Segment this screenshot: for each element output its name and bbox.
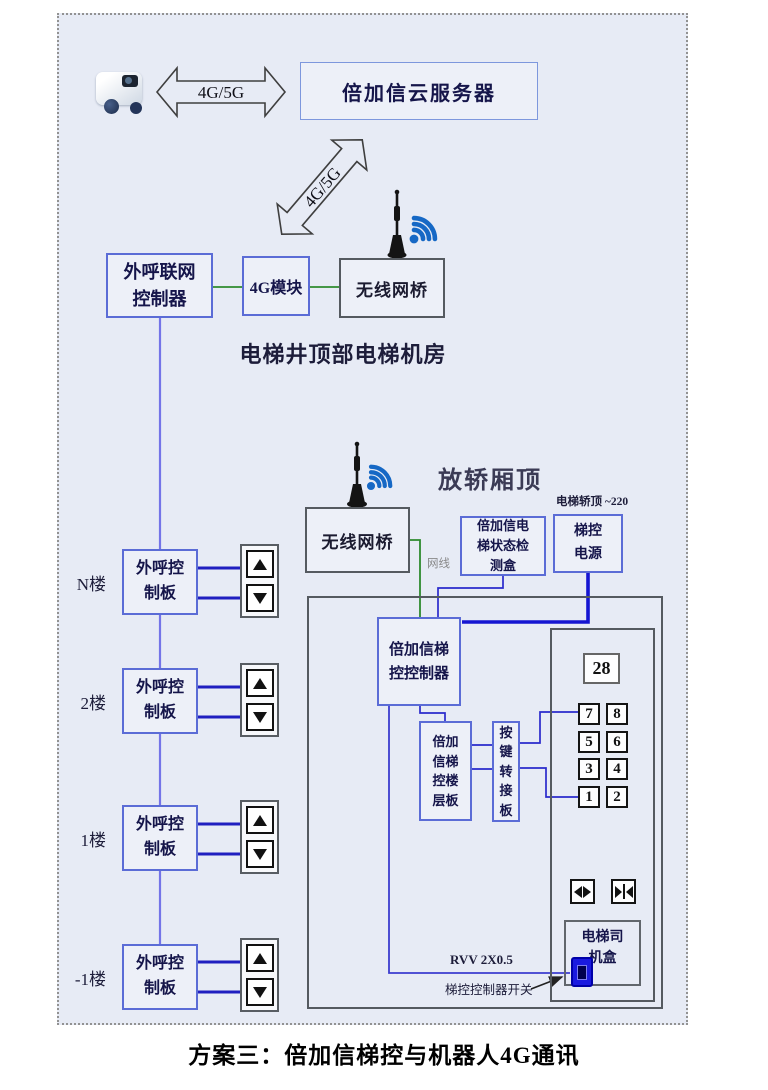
keypad-button-7: 7 xyxy=(578,703,600,725)
power-note-label: 电梯轿顶 ~220 xyxy=(556,493,646,509)
switch-slot xyxy=(577,965,587,980)
keypad-button-4: 4 xyxy=(606,758,628,780)
switch-label: 梯控控制器开关 xyxy=(445,979,545,998)
down-arrow-icon xyxy=(246,840,274,868)
robot-icon xyxy=(96,64,152,118)
keypad-button-8: 8 xyxy=(606,703,628,725)
keypad-button-5: 5 xyxy=(578,731,600,753)
down-arrow-icon xyxy=(246,703,274,731)
door-open-right-triangle xyxy=(583,886,591,898)
elevator-status-detect-box: 倍加信电 梯状态检 测盒 xyxy=(460,516,546,576)
up-arrow-icon xyxy=(246,944,274,972)
up-arrow-icon xyxy=(246,669,274,697)
car-top-caption: 放轿厢顶 xyxy=(438,460,548,495)
scheme-diagram-page: 4G/5G 4G/5G xyxy=(0,0,768,1090)
page-title: 方案三：倍加信梯控与机器人4G通讯 xyxy=(0,1036,768,1070)
door-close-icon xyxy=(611,879,636,904)
up-arrow-icon xyxy=(246,550,274,578)
machine-room-caption: 电梯井顶部电梯机房 xyxy=(237,337,449,369)
call-button-panel-2 xyxy=(240,663,279,737)
robot-camera-lens xyxy=(125,77,132,84)
door-close-bar xyxy=(623,884,625,899)
outcall-board-n: 外呼控 制板 xyxy=(122,549,198,615)
cloud-server-box: 倍加信云服务器 xyxy=(300,62,538,120)
elevator-control-controller-box: 倍加信梯 控控制器 xyxy=(377,617,461,706)
keypad-button-6: 6 xyxy=(606,731,628,753)
keypad-button-1: 1 xyxy=(578,786,600,808)
outcall-board-minus1: 外呼控 制板 xyxy=(122,944,198,1010)
call-button-panel-1 xyxy=(240,800,279,874)
net-cable-label: 网线 xyxy=(427,555,457,571)
elevator-control-power-box: 梯控 电源 xyxy=(553,514,623,573)
robot-wheel xyxy=(130,102,142,114)
key-adapter-board-box: 按 键 转 接 板 xyxy=(492,721,520,822)
keypad-button-2: 2 xyxy=(606,786,628,808)
floor-label-n: N楼 xyxy=(60,549,106,615)
module-4g-box: 4G模块 xyxy=(242,256,310,316)
outcall-board-2: 外呼控 制板 xyxy=(122,668,198,734)
floor-display: 28 xyxy=(583,653,620,684)
rvv-wire-label: RVV 2X0.5 xyxy=(450,952,520,968)
down-arrow-icon xyxy=(246,584,274,612)
keypad-button-3: 3 xyxy=(578,758,600,780)
outcall-network-controller-box: 外呼联网 控制器 xyxy=(106,253,213,318)
floor-label-1: 1楼 xyxy=(60,805,106,871)
floor-label-2: 2楼 xyxy=(60,668,106,734)
door-close-left-triangle xyxy=(615,886,622,898)
outcall-board-1: 外呼控 制板 xyxy=(122,805,198,871)
down-arrow-icon xyxy=(246,978,274,1006)
door-open-left-triangle xyxy=(574,886,582,898)
door-open-icon xyxy=(570,879,595,904)
door-close-right-triangle xyxy=(626,886,633,898)
robot-wheel xyxy=(104,99,119,114)
call-button-panel-n xyxy=(240,544,279,618)
floor-label-minus1: -1楼 xyxy=(56,944,106,1010)
floor-board-box: 倍加 信梯 控楼 层板 xyxy=(419,721,472,821)
wireless-bridge-box: 无线网桥 xyxy=(339,258,445,318)
switch-icon xyxy=(571,957,593,987)
up-arrow-icon xyxy=(246,806,274,834)
call-button-panel-minus1 xyxy=(240,938,279,1012)
wireless-bridge-cartop-box: 无线网桥 xyxy=(305,507,410,573)
